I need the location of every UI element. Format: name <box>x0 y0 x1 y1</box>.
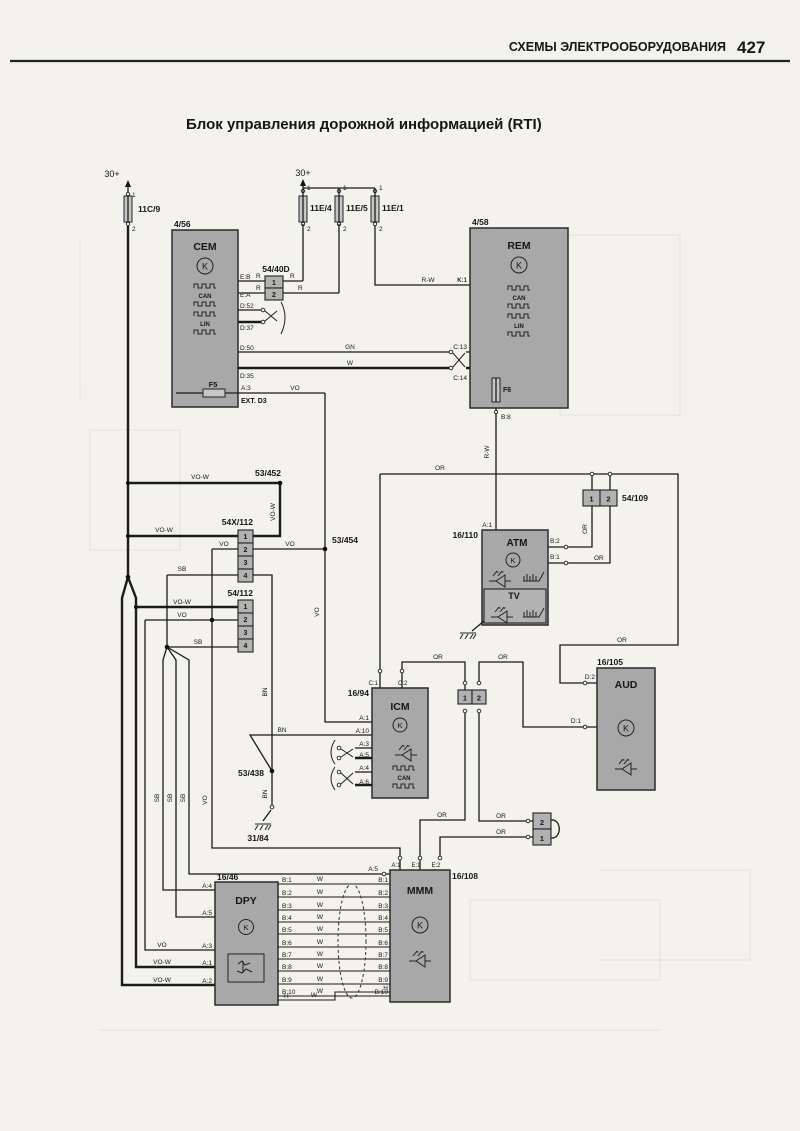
wire-color-label: VO-W <box>173 599 192 606</box>
power-feed-left: 30+ 1 11C/9 2 <box>104 169 160 233</box>
pin-label: E:A <box>240 292 251 299</box>
wire-color-label: W <box>317 876 324 883</box>
connector-54-40d: 54/40D 1 2 <box>262 264 289 300</box>
pin-label: 2 <box>244 547 248 554</box>
ext-d3-label: EXT. D3 <box>241 398 267 405</box>
control-unit-icon: K <box>397 721 402 730</box>
pin-label: B:6 <box>378 940 388 947</box>
pin-label: B:1 <box>550 554 560 561</box>
pin-label: D:37 <box>240 325 254 332</box>
pin-label: D:2 <box>585 674 596 681</box>
pin-label: B:4 <box>282 915 292 922</box>
pin-label: 4 <box>244 573 248 580</box>
block-ref: 16/108 <box>452 871 478 881</box>
connector-label: 54/109 <box>622 493 648 503</box>
can-bus-icon: CAN <box>513 296 526 302</box>
pin-label: A:5 <box>202 910 212 917</box>
loop-jumper <box>551 820 559 838</box>
pin-label: C:14 <box>453 375 467 382</box>
wire-color-label: W <box>317 963 324 970</box>
wire-color-label: W <box>317 889 324 896</box>
block-name: CEM <box>193 241 217 253</box>
wire-color-label: W <box>317 914 324 921</box>
can-bus-icon: CAN <box>398 776 411 782</box>
wire-color-label: VO <box>157 942 166 949</box>
display-bus-wires: B:1 B:2 B:3 B:4 B:5 B:6 B:7 B:8 B:9 B:10… <box>278 876 390 1000</box>
pin-label: 3 <box>244 630 248 637</box>
wire-color-label: VO-W <box>191 474 210 481</box>
wire-color-label: GN <box>345 344 355 351</box>
wire-color-label: BN <box>277 727 286 734</box>
pin-label: B:5 <box>378 927 388 934</box>
pin-label: 2 <box>379 226 383 233</box>
pin-label: 1 <box>589 495 593 504</box>
pin-label: 2 <box>244 617 248 624</box>
pin-label: A:1 <box>391 863 401 869</box>
pin-label: B:9 <box>378 977 388 984</box>
pin-label: A:3 <box>359 741 369 748</box>
pin-label: 1 <box>272 280 276 287</box>
wire-color-label: OR <box>594 555 604 562</box>
pin-label: B:8 <box>501 414 511 421</box>
wire-color-label: R <box>256 273 261 280</box>
pin-label: E:2 <box>431 863 441 869</box>
control-unit-icon: K <box>202 262 208 272</box>
pin-label: E:B <box>240 274 250 281</box>
wire-color-label: VO <box>219 541 228 548</box>
fuse-11c9-label: 11C/9 <box>138 204 160 214</box>
power-feed-center: 30+ 1 11E/4 2 1 11E/5 2 1 11E/1 2 <box>295 168 404 233</box>
pin-label: 2 <box>477 694 481 703</box>
wire-color-label: R-W <box>484 445 491 459</box>
wire-color-label: R-W <box>422 277 436 284</box>
wire-color-label: SB <box>167 794 174 803</box>
wire-color-label: OR <box>498 654 508 661</box>
fuse-11e4: 1 11E/4 2 <box>299 185 332 233</box>
pin-label: B:1 <box>378 877 388 884</box>
pin-label: A:5 <box>368 866 378 873</box>
block-name: DPY <box>235 895 257 907</box>
page-header: СХЕМЫ ЭЛЕКТРООБОРУДОВАНИЯ 427 <box>10 38 790 61</box>
wire-color-label: VO <box>177 612 186 619</box>
block-name: ATM <box>507 538 528 549</box>
pin-label: 2 <box>540 818 544 827</box>
tv-section-label: TV <box>508 591 520 601</box>
wire-color-label: VO-W <box>270 502 277 521</box>
header-page-number: 427 <box>737 38 765 57</box>
wire-color-label: W <box>311 992 318 999</box>
pin-label: B:3 <box>282 903 292 910</box>
block-ref: 16/110 <box>452 530 478 540</box>
splice-53-454-label: 53/454 <box>332 535 358 545</box>
pin-label: D:50 <box>240 345 254 352</box>
wire-color-label: SB <box>180 794 187 803</box>
wire-color-label: VO-W <box>155 527 174 534</box>
pin-label: B:5 <box>282 927 292 934</box>
pin-label: B:7 <box>282 952 292 959</box>
fuse-f5 <box>203 389 225 397</box>
pin-label: 3 <box>244 560 248 567</box>
pin-label: 4 <box>244 643 248 650</box>
pin-label: 2 <box>132 226 136 233</box>
wire-color-label: VO-W <box>153 977 172 984</box>
control-unit-icon: K <box>243 923 248 932</box>
wire-color-label: SB <box>194 639 203 646</box>
block-ref: 16/94 <box>348 688 370 698</box>
pin-label: C:13 <box>453 344 467 351</box>
cable-shield-icon <box>338 884 366 998</box>
battery-30-label: 30+ <box>104 169 119 179</box>
pin-label: 2 <box>606 495 610 504</box>
wire-color-label: SB <box>178 566 187 573</box>
block-aud: 16/105 AUD K D:2 D:1 <box>571 657 655 790</box>
block-cem: 4/56 CEM K CAN LIN F5 E:B E:A D:52 D:37 … <box>172 219 285 407</box>
connector-inline-12: 1 2 <box>458 690 486 704</box>
block-ref: 16/105 <box>597 657 623 667</box>
pin-label: 2 <box>272 292 276 299</box>
pin-label: B:6 <box>282 940 292 947</box>
wire-color-label: R <box>290 273 295 280</box>
wire-color-label: OR <box>435 465 445 472</box>
wire-color-label: BN <box>262 687 269 696</box>
pin-label: K:1 <box>457 277 467 284</box>
pin-label: H <box>383 985 388 992</box>
pin-label: 1 <box>244 604 248 611</box>
pin-label: B:7 <box>378 952 388 959</box>
pin-label: E:1 <box>411 863 421 869</box>
pin-label: A:2 <box>202 978 212 985</box>
pin-label: H <box>284 993 289 1000</box>
pin-label: A:3 <box>202 943 212 950</box>
connector-label: 54X/112 <box>222 517 253 527</box>
block-name: ICM <box>390 701 410 713</box>
fuse-11e1: 1 11E/1 2 <box>371 185 404 233</box>
control-unit-icon: K <box>623 724 629 734</box>
ground-31-84-label: 31/84 <box>247 833 269 843</box>
control-unit-icon: K <box>510 556 515 565</box>
pin-label: D:35 <box>240 373 254 380</box>
wire-color-label: OR <box>582 524 589 534</box>
wire-color-label: W <box>317 988 324 995</box>
wire-color-label: W <box>317 926 324 933</box>
fuse-f5-label: F5 <box>209 380 218 389</box>
pin-label: 1 <box>463 694 467 703</box>
pin-label: B:9 <box>282 977 292 984</box>
diagram-title: Блок управления дорожной информацией (RT… <box>186 116 542 133</box>
pin-label: 1 <box>540 834 544 843</box>
pin-label: B:3 <box>378 903 388 910</box>
wire-color-label: BN <box>262 789 269 798</box>
wire-color-label: W <box>317 976 324 983</box>
wire-color-label: VO <box>285 541 294 548</box>
wire-color-label: SB <box>154 794 161 803</box>
pin-label: B:1 <box>282 877 292 884</box>
pin-label: 1 <box>379 185 383 192</box>
wire-color-label: R <box>298 285 303 292</box>
wire-color-label: OR <box>617 637 627 644</box>
block-ref: 4/56 <box>174 219 191 229</box>
wire-color-label: W <box>317 951 324 958</box>
pin-label: A:1 <box>202 960 212 967</box>
connector-loop-21: 2 1 <box>533 813 551 845</box>
pin-label: A:1 <box>359 715 369 722</box>
pin-label: B:8 <box>282 964 292 971</box>
pin-label: D:52 <box>240 303 254 310</box>
pin-label: D:1 <box>571 718 582 725</box>
block-atm-tv: 16/110 A:1 ATM K TV B:2 B:1 <box>452 522 560 639</box>
header-section-title: СХЕМЫ ЭЛЕКТРООБОРУДОВАНИЯ <box>509 40 726 54</box>
block-ref: 4/58 <box>472 217 489 227</box>
block-name: AUD <box>615 679 638 691</box>
block-name: REM <box>507 240 531 252</box>
can-bus-icon: CAN <box>199 294 212 300</box>
wire-color-label: VO-W <box>153 959 172 966</box>
pin-label: 1 <box>343 185 347 192</box>
splice-53-452-label: 53/452 <box>255 468 281 478</box>
pin-label: A:1 <box>482 522 492 529</box>
block-icm: 16/94 ICM K CAN C:1 C:2 A:1 A:10 A:3 A:5… <box>331 681 428 798</box>
control-unit-icon: K <box>516 261 522 271</box>
pin-label: A:10 <box>356 728 370 735</box>
pin-label: 1 <box>132 192 136 199</box>
fuse-11e5-label: 11E/5 <box>346 203 368 213</box>
pin-label: B:2 <box>550 538 560 545</box>
block-rem: 4/58 REM K CAN LIN F6 K:1 C:13 C:14 B:8 <box>449 217 568 421</box>
wire-color-label: VO <box>290 385 299 392</box>
block-ref: 16/46 <box>217 872 239 882</box>
wire-color-label: OR <box>496 813 506 820</box>
pin-label: B:4 <box>378 915 388 922</box>
lin-bus-icon: LIN <box>514 324 524 330</box>
wire-color-label: W <box>317 939 324 946</box>
pin-label: 2 <box>307 226 311 233</box>
pin-label: C:2 <box>398 681 408 687</box>
wire-color-label: W <box>317 902 324 909</box>
pin-label: B:8 <box>378 964 388 971</box>
connector-label: 54/40D <box>262 264 289 274</box>
pin-label: A:4 <box>202 883 212 890</box>
fuse-11e5: 1 11E/5 2 <box>335 185 368 233</box>
splice-53-438-label: 53/438 <box>238 768 264 778</box>
pin-label: 1 <box>307 185 311 192</box>
pin-label: B:2 <box>378 890 388 897</box>
pin-label: A:3 <box>241 385 251 392</box>
pin-label: 2 <box>343 226 347 233</box>
pin-label: C:1 <box>369 681 379 687</box>
battery-30-label: 30+ <box>295 168 310 178</box>
pin-label: A:4 <box>359 765 369 772</box>
wire-color-label: OR <box>433 654 443 661</box>
fuse-11e1-label: 11E/1 <box>382 203 404 213</box>
block-name: MMM <box>407 885 433 897</box>
connector-54-109: 1 2 54/109 <box>583 490 648 506</box>
connector-label: 54/112 <box>227 588 253 598</box>
wire-color-label: OR <box>437 812 447 819</box>
wire-color-label: W <box>347 360 354 367</box>
scanned-wiring-diagram-page: СХЕМЫ ЭЛЕКТРООБОРУДОВАНИЯ 427 Блок управ… <box>0 0 800 1131</box>
lin-bus-icon: LIN <box>200 322 210 328</box>
wire-color-label: OR <box>496 829 506 836</box>
wire-color-label: VO <box>314 607 321 616</box>
fuse-11e4-label: 11E/4 <box>310 203 332 213</box>
fuse-f6-label: F6 <box>503 387 511 394</box>
pin-label: 1 <box>244 534 248 541</box>
wire-color-label: VO <box>202 795 209 804</box>
control-unit-icon: K <box>417 921 423 931</box>
wire-color-label: R <box>256 285 261 292</box>
pin-label: B:2 <box>282 890 292 897</box>
